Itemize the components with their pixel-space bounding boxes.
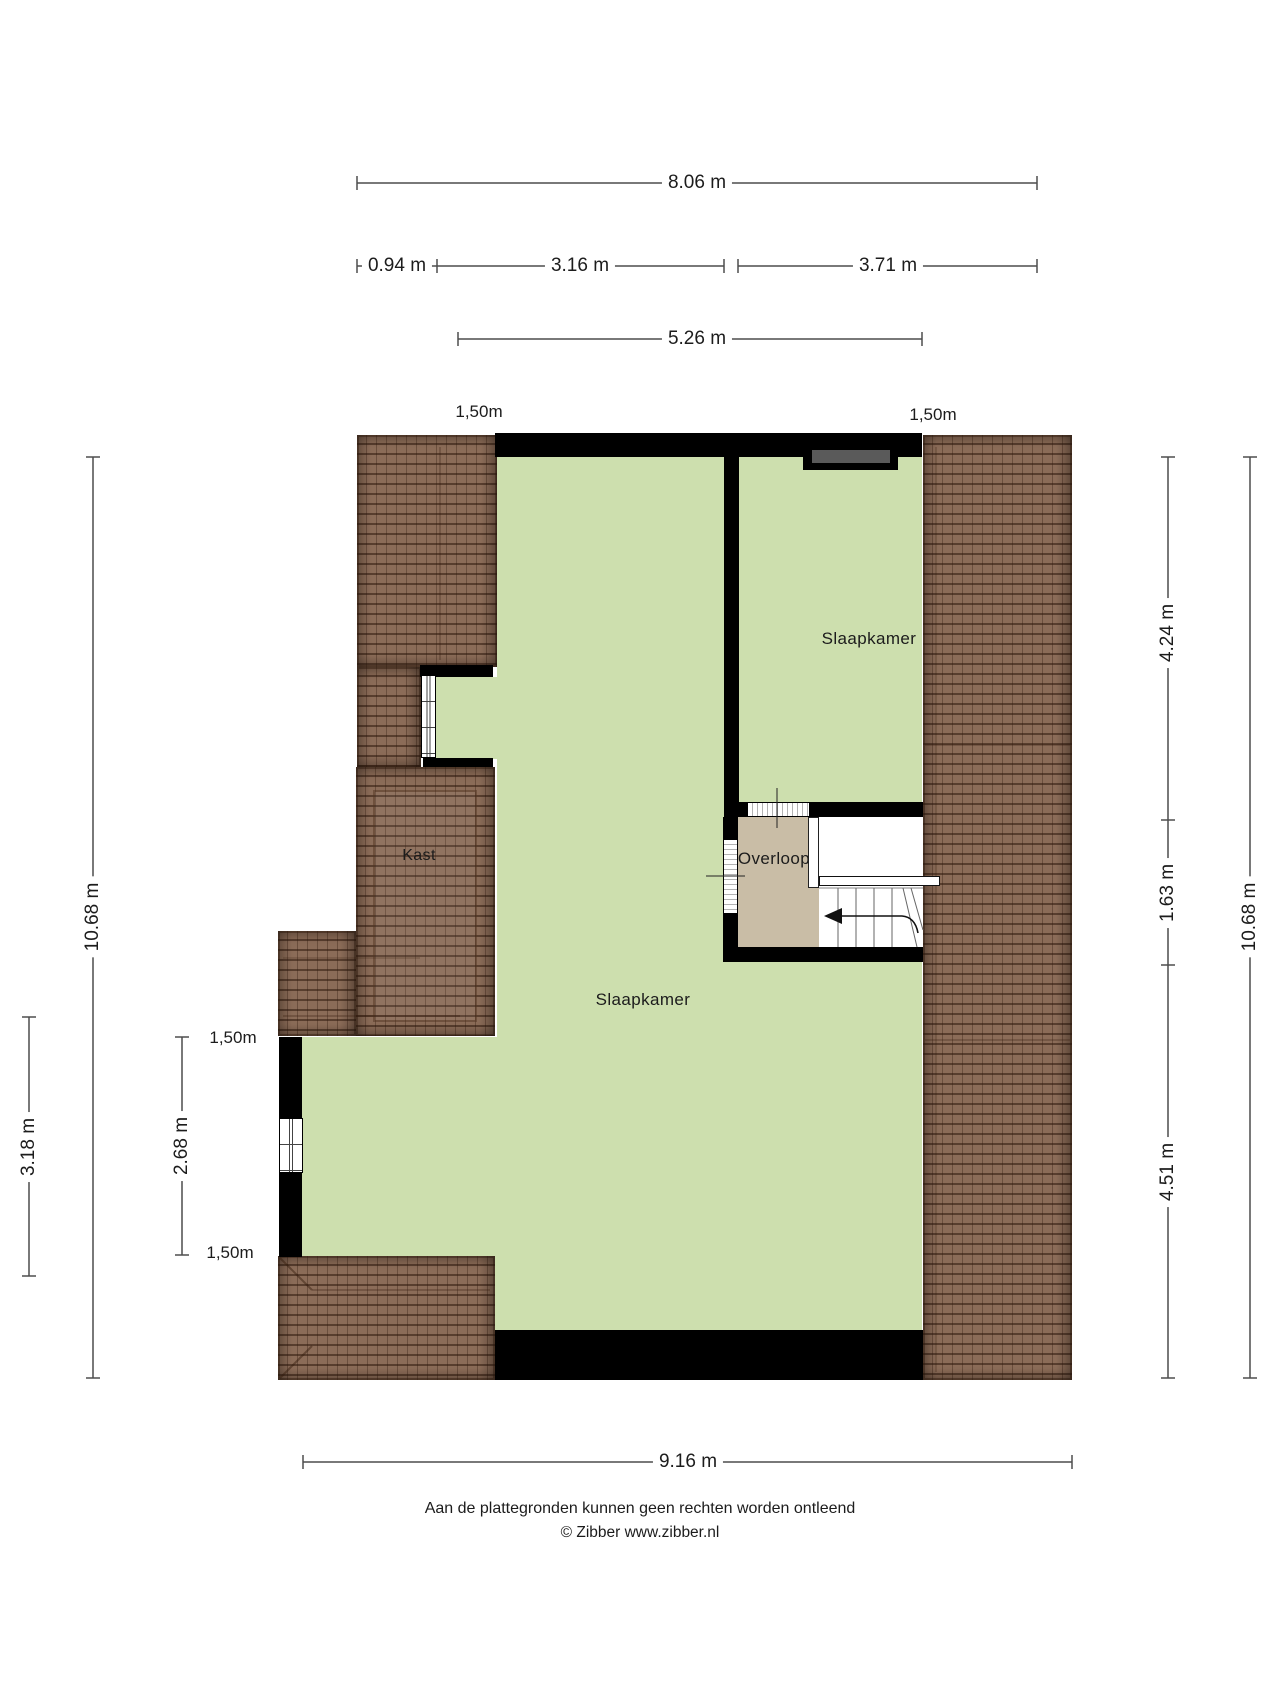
- dim-bottom-width: 9.16 m: [653, 1451, 723, 1473]
- dim-total-width: 8.06 m: [662, 172, 732, 194]
- dim-right-upper: 4.24 m: [1157, 598, 1179, 668]
- footer-disclaimer: Aan de plattegronden kunnen geen rechten…: [0, 1500, 1280, 1518]
- dim-seg-mid: 3.16 m: [545, 255, 615, 277]
- dim-seg-right: 3.71 m: [853, 255, 923, 277]
- dim-seg-left: 0.94 m: [362, 255, 432, 277]
- dim-left-height: 10.68 m: [82, 877, 104, 958]
- room-label-closet: Kast: [402, 847, 436, 865]
- dim-inner-width: 5.26 m: [662, 328, 732, 350]
- room-label-bedroom-right: Slaapkamer: [822, 629, 917, 649]
- dimension-lines: [0, 0, 1280, 1707]
- room-label-landing: Overloop: [738, 849, 810, 869]
- dim-right-height: 10.68 m: [1239, 877, 1261, 958]
- dim-left-inner-height: 2.68 m: [171, 1111, 193, 1181]
- dim-left-lower-height: 3.18 m: [18, 1112, 40, 1182]
- dim-right-lower: 4.51 m: [1157, 1137, 1179, 1207]
- headroom-left-upper: 1,50m: [209, 1028, 256, 1048]
- headroom-top-right: 1,50m: [909, 405, 956, 425]
- footer-copyright: © Zibber www.zibber.nl: [0, 1524, 1280, 1542]
- room-label-bedroom-left: Slaapkamer: [596, 990, 691, 1010]
- floorplan-page: { "plan": { "rooms": { "bedroom_left": "…: [0, 0, 1280, 1707]
- headroom-left-lower: 1,50m: [206, 1243, 253, 1263]
- dim-right-mid: 1.63 m: [1157, 858, 1179, 928]
- headroom-top-left: 1,50m: [455, 402, 502, 422]
